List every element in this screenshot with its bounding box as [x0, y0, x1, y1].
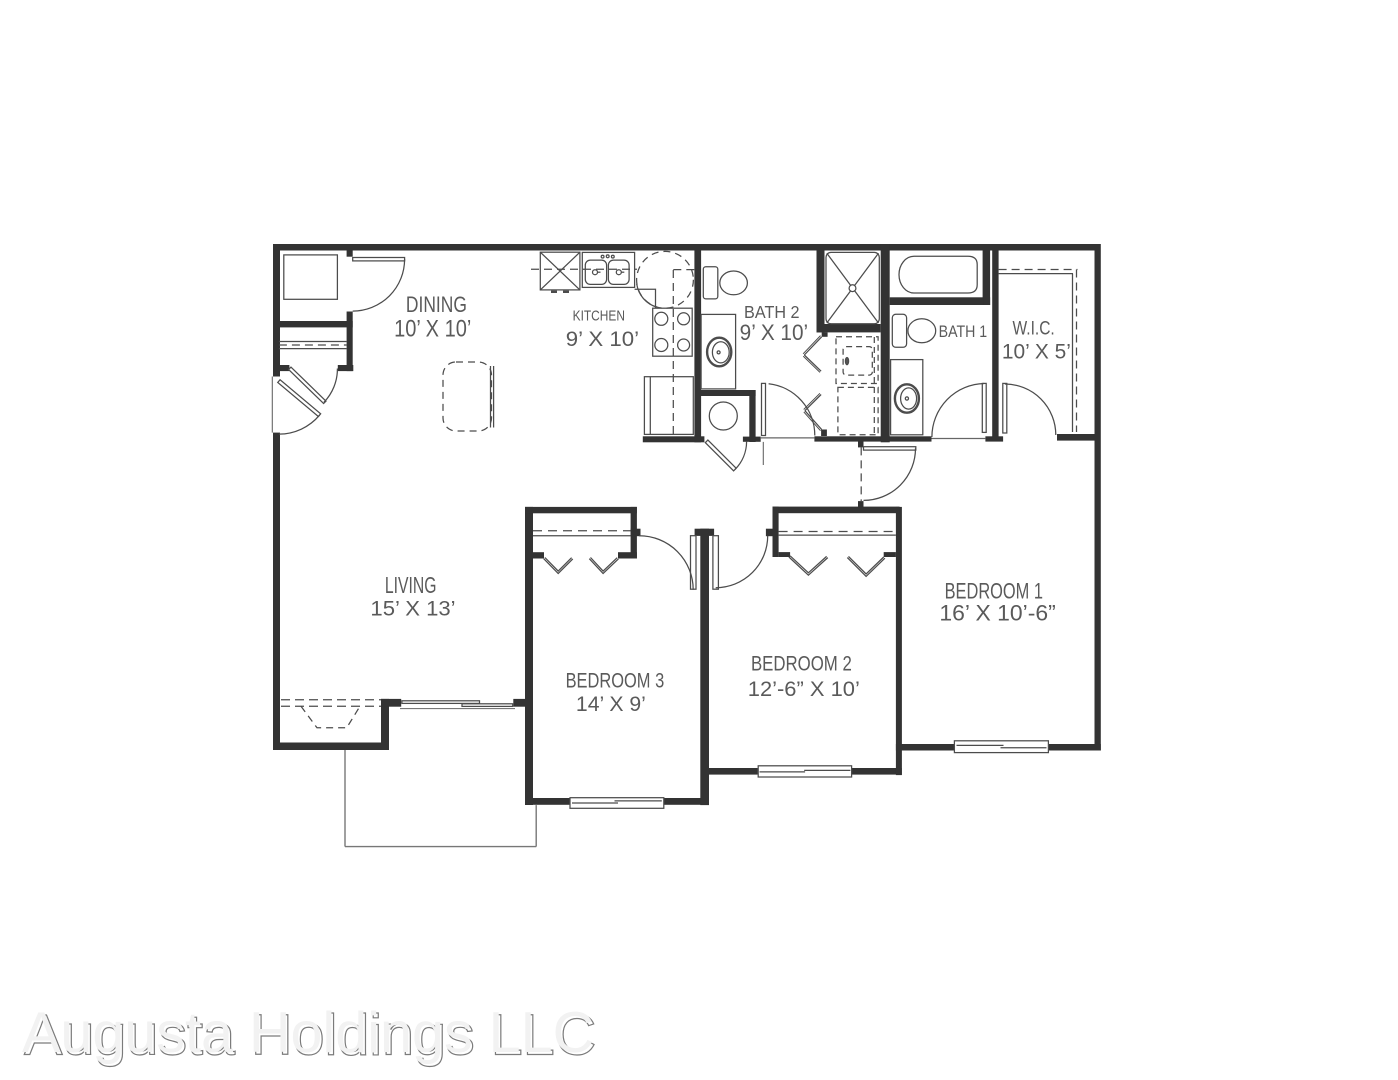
svg-text:9’ X 10’: 9’ X 10’: [566, 326, 639, 351]
svg-text:BEDROOM 3: BEDROOM 3: [566, 670, 665, 694]
svg-text:Augusta Holdings LLC: Augusta Holdings LLC: [22, 1001, 594, 1065]
svg-text:LIVING: LIVING: [385, 573, 437, 599]
svg-text:9’ X 10’: 9’ X 10’: [740, 319, 808, 345]
svg-text:12’-6” X 10’: 12’-6” X 10’: [748, 676, 860, 701]
svg-text:16’ X 10’-6”: 16’ X 10’-6”: [939, 601, 1055, 626]
svg-text:14’ X 9’: 14’ X 9’: [576, 692, 646, 716]
svg-text:BEDROOM 2: BEDROOM 2: [751, 653, 852, 676]
svg-text:10’ X 5’: 10’ X 5’: [1002, 341, 1071, 364]
svg-text:BATH 1: BATH 1: [939, 323, 988, 341]
svg-text:W.I.C.: W.I.C.: [1012, 317, 1054, 339]
svg-text:15’ X 13’: 15’ X 13’: [370, 596, 455, 620]
svg-text:10’ X 10’: 10’ X 10’: [394, 315, 471, 342]
svg-text:KITCHEN: KITCHEN: [573, 307, 625, 324]
